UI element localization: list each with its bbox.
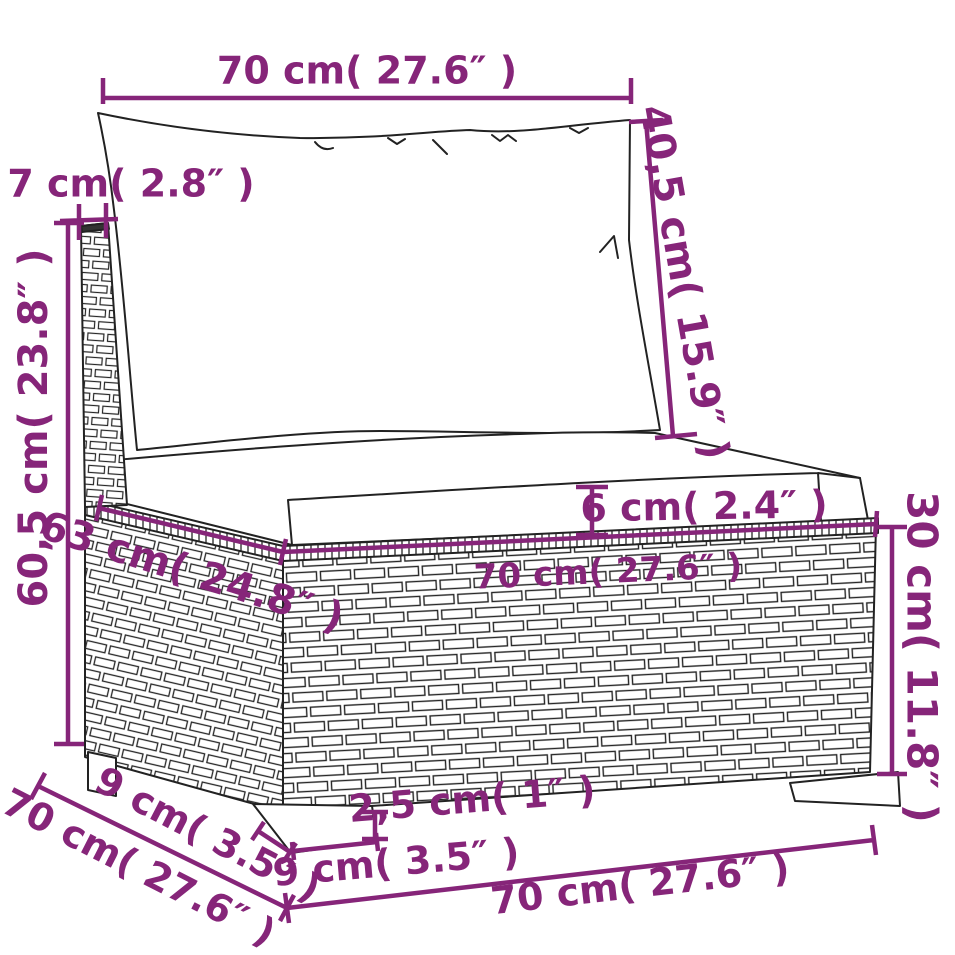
label-base-height: 30 cm( 11.8″ ): [897, 491, 946, 823]
label-back-post-width: 7 cm( 2.8″ ): [7, 161, 254, 205]
dim-line-total-height: [54, 223, 84, 744]
sofa-dimension-diagram: 70 cm( 27.6″ ) 7 cm( 2.8″ ) 60,5 cm( 23.…: [0, 0, 955, 955]
label-total-height: 60,5 cm( 23.8″ ): [11, 249, 57, 608]
label-cushion-thickness: 6 cm( 2.4″ ): [580, 482, 828, 530]
label-top-width: 70 cm( 27.6″ ): [217, 48, 517, 92]
diagram-canvas: 70 cm( 27.6″ ) 7 cm( 2.8″ ) 60,5 cm( 23.…: [0, 0, 955, 955]
label-base-bottom-width: 70 cm( 27.6″ ): [488, 845, 791, 923]
